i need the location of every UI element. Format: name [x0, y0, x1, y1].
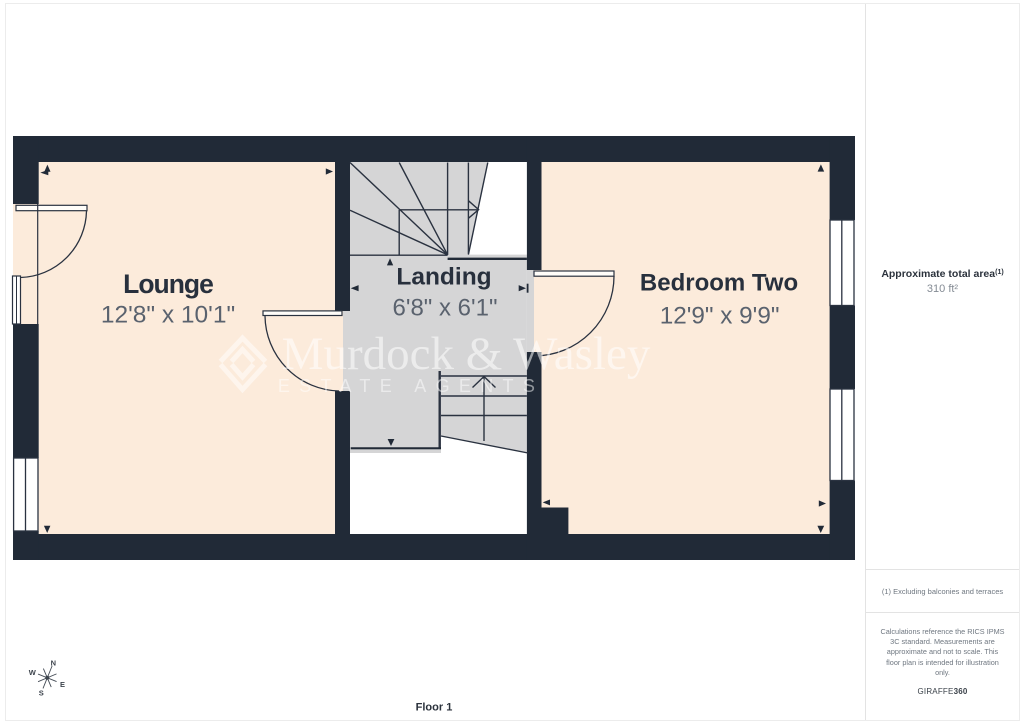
svg-text:E: E: [60, 680, 65, 689]
svg-text:N: N: [51, 659, 56, 668]
svg-text:ESTATE AGENTS: ESTATE AGENTS: [278, 376, 544, 396]
svg-text:Floor 1: Floor 1: [416, 702, 453, 714]
svg-text:6'8" x 6'1": 6'8" x 6'1": [393, 295, 498, 322]
svg-text:Bedroom Two: Bedroom Two: [640, 269, 798, 296]
svg-text:12'9" x 9'9": 12'9" x 9'9": [660, 302, 780, 329]
svg-text:Murdock & Wasley: Murdock & Wasley: [282, 328, 651, 380]
svg-text:12'8" x 10'1": 12'8" x 10'1": [101, 301, 235, 328]
svg-text:Landing: Landing: [396, 263, 491, 290]
svg-text:Lounge: Lounge: [123, 269, 213, 299]
svg-text:W: W: [29, 668, 37, 677]
svg-text:S: S: [39, 688, 44, 697]
